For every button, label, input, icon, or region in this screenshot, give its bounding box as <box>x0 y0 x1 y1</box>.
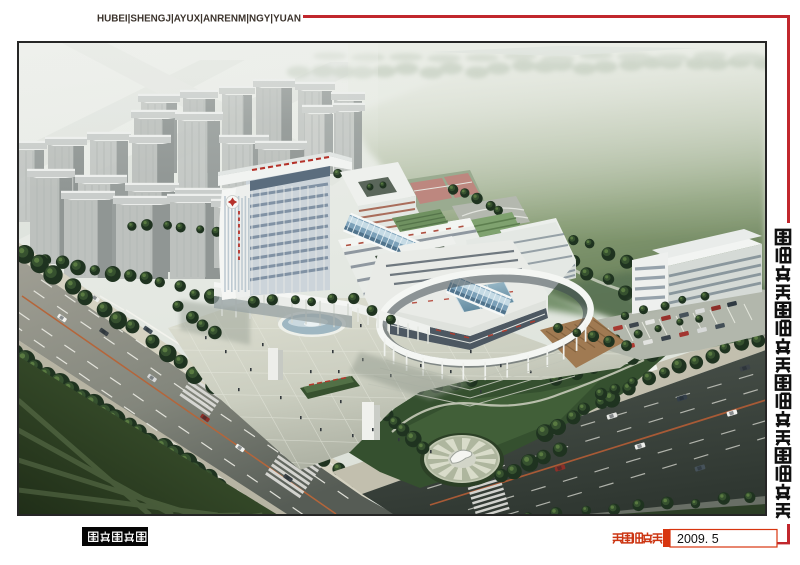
svg-text:HUBEI|SHENGJ|AYUX|ANRENM|NGY|Y: HUBEI|SHENGJ|AYUX|ANRENM|NGY|YUAN <box>97 13 301 25</box>
svg-text:2009. 5: 2009. 5 <box>677 532 719 546</box>
